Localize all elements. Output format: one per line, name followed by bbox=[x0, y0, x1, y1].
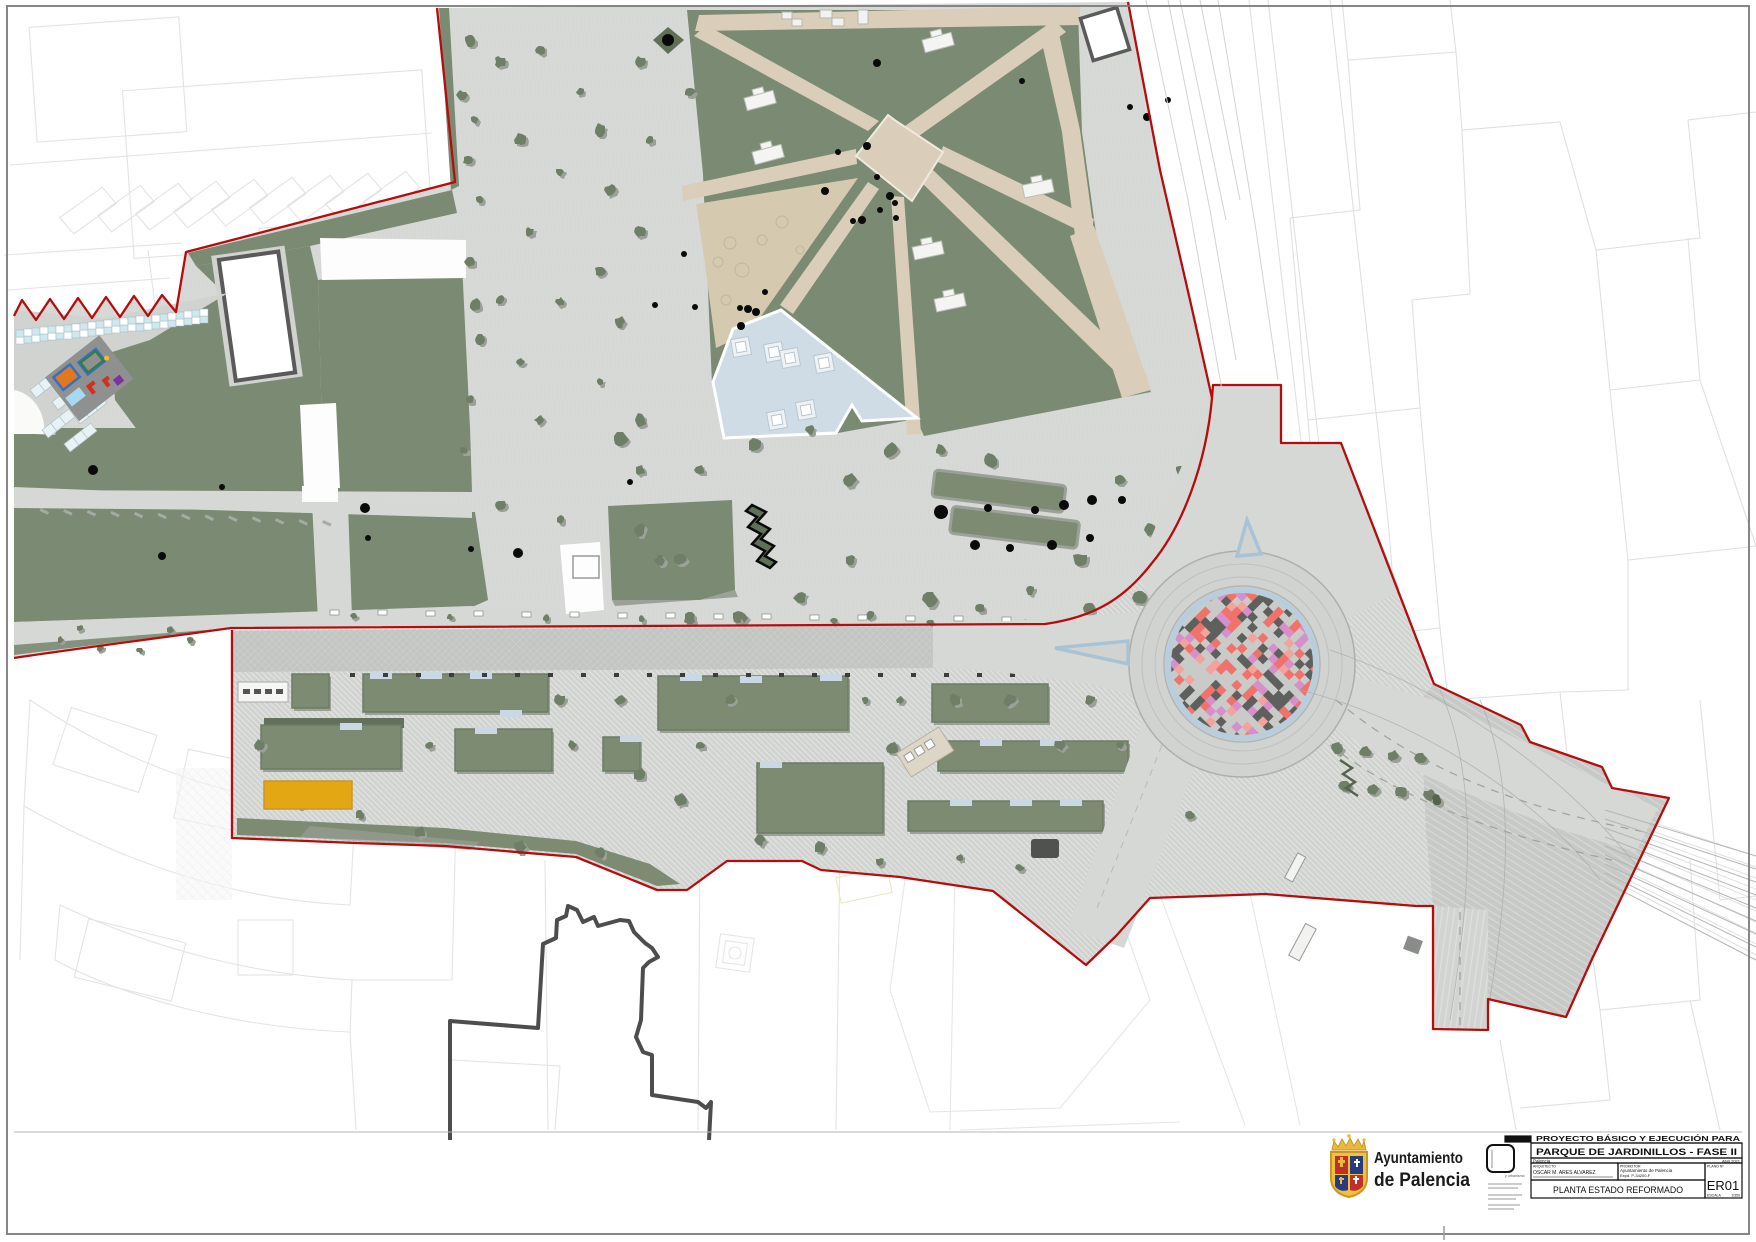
svg-text:ESCALA: ESCALA bbox=[1707, 1194, 1721, 1198]
svg-text:PLANO Nº: PLANO Nº bbox=[1707, 1165, 1724, 1169]
svg-text:de Palencia: de Palencia bbox=[1374, 1170, 1470, 1191]
svg-text:1/350: 1/350 bbox=[1731, 1194, 1740, 1198]
svg-text:PROYECTO BÁSICO Y EJECUCIÓN PA: PROYECTO BÁSICO Y EJECUCIÓN PARA bbox=[1536, 1134, 1741, 1143]
svg-text:ARQUITECTO: ARQUITECTO bbox=[1533, 1165, 1556, 1169]
svg-text:PARQUE DE JARDINILLOS - FASE I: PARQUE DE JARDINILLOS - FASE II bbox=[1536, 1147, 1737, 1158]
svg-text:Ayuntamiento: Ayuntamiento bbox=[1374, 1150, 1463, 1167]
svg-text:OSCAR M. ARES ALVAREZ: OSCAR M. ARES ALVAREZ bbox=[1533, 1170, 1596, 1176]
svg-text:y urbanismo: y urbanismo bbox=[1505, 1174, 1525, 1178]
svg-text:Abril 2021: Abril 2021 bbox=[1722, 1159, 1741, 1164]
svg-text:PLANTA ESTADO REFORMADO: PLANTA ESTADO REFORMADO bbox=[1553, 1185, 1683, 1195]
svg-text:Palencia: Palencia bbox=[1533, 1159, 1551, 1164]
svg-text:Expd. P-34200-F: Expd. P-34200-F bbox=[1620, 1173, 1651, 1178]
svg-text:ER01: ER01 bbox=[1707, 1178, 1740, 1193]
